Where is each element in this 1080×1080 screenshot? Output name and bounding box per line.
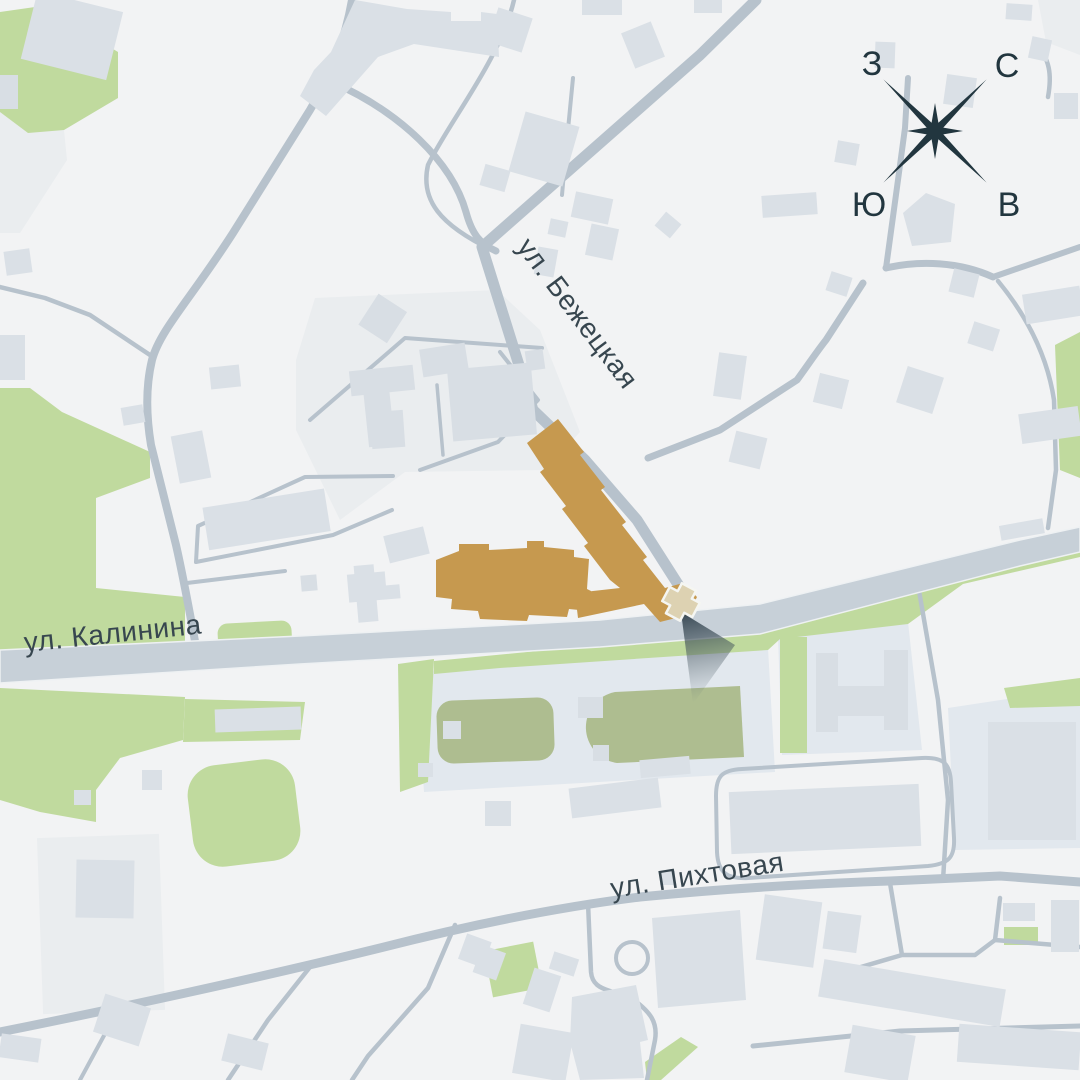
city-map: ул. Калинина ул. Бежецкая ул. Пихтовая З… — [0, 0, 1080, 1080]
building — [582, 0, 622, 15]
building — [370, 410, 406, 449]
building — [75, 859, 134, 918]
building — [570, 985, 648, 1080]
building — [694, 0, 722, 13]
building — [729, 784, 922, 854]
compass-east-label: В — [998, 186, 1021, 224]
building — [209, 364, 241, 389]
building — [447, 362, 537, 441]
building — [3, 248, 32, 275]
building — [823, 911, 862, 953]
building — [988, 722, 1076, 840]
building — [761, 192, 817, 218]
building — [1054, 93, 1078, 119]
building — [443, 721, 461, 739]
building — [121, 404, 146, 426]
building — [834, 140, 859, 165]
building — [300, 574, 317, 591]
compass-north-label: С — [995, 47, 1020, 85]
building — [1005, 3, 1032, 21]
green-area — [780, 637, 807, 753]
green-area — [184, 756, 304, 870]
building — [0, 75, 18, 109]
building — [652, 910, 746, 1008]
compass-west-label: З — [862, 45, 883, 83]
building — [142, 770, 162, 790]
building — [578, 697, 603, 718]
building — [215, 707, 302, 733]
building — [485, 801, 511, 826]
stadium-field — [586, 686, 744, 763]
highlighted-building-block — [436, 541, 591, 621]
building — [525, 349, 546, 371]
building — [74, 790, 91, 805]
building — [1003, 903, 1035, 921]
building — [512, 1024, 574, 1080]
building — [0, 335, 25, 380]
building — [382, 584, 400, 599]
compass-south-label: Ю — [852, 186, 886, 224]
building — [418, 763, 433, 777]
building — [756, 894, 823, 967]
building — [943, 74, 977, 108]
building — [1051, 900, 1079, 952]
building — [593, 745, 609, 761]
